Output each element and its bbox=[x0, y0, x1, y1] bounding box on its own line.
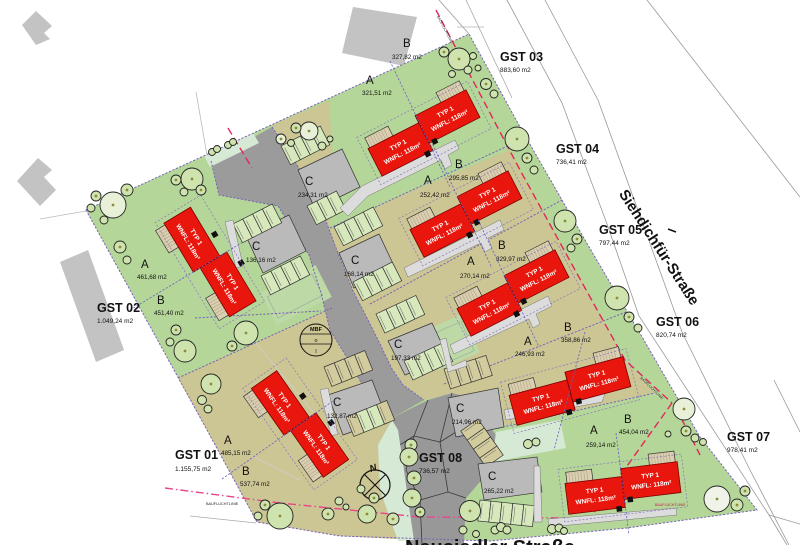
svg-text:GST 06: GST 06 bbox=[656, 315, 699, 329]
svg-text:1.049,24 m2: 1.049,24 m2 bbox=[97, 318, 134, 325]
svg-text:C: C bbox=[488, 471, 496, 483]
svg-text:537,74 m2: 537,74 m2 bbox=[240, 481, 270, 488]
svg-text:A: A bbox=[590, 425, 598, 437]
svg-text:GST 08: GST 08 bbox=[419, 451, 462, 465]
svg-text:358,86 m2: 358,86 m2 bbox=[561, 337, 591, 344]
svg-text:GST 02: GST 02 bbox=[97, 301, 140, 315]
svg-text:B: B bbox=[403, 38, 411, 50]
svg-text:C: C bbox=[456, 403, 464, 415]
svg-text:B: B bbox=[624, 414, 632, 426]
svg-text:B: B bbox=[242, 466, 250, 478]
svg-text:MBF: MBF bbox=[310, 327, 323, 333]
svg-text:A: A bbox=[467, 256, 475, 268]
svg-text:820,74 m2: 820,74 m2 bbox=[656, 332, 687, 339]
svg-text:321,51 m2: 321,51 m2 bbox=[362, 90, 392, 97]
svg-text:C: C bbox=[394, 339, 402, 351]
svg-text:132,87 m2: 132,87 m2 bbox=[327, 413, 357, 420]
svg-text:270,14 m2: 270,14 m2 bbox=[460, 273, 490, 280]
svg-text:327,82 m2: 327,82 m2 bbox=[392, 54, 422, 61]
svg-text:168,14 m2: 168,14 m2 bbox=[344, 271, 374, 278]
svg-text:B: B bbox=[455, 159, 463, 171]
svg-text:GST 03: GST 03 bbox=[500, 50, 543, 64]
svg-text:C: C bbox=[305, 176, 313, 188]
svg-text:797,44 m2: 797,44 m2 bbox=[599, 240, 630, 247]
svg-text:214,96 m2: 214,96 m2 bbox=[452, 419, 482, 426]
svg-text:736,57 m2: 736,57 m2 bbox=[419, 468, 450, 475]
svg-text:o: o bbox=[314, 338, 317, 344]
svg-text:BAUFLUCHTLINIE: BAUFLUCHTLINIE bbox=[655, 503, 686, 507]
svg-text:A: A bbox=[224, 435, 232, 447]
svg-text:978,41 m2: 978,41 m2 bbox=[727, 447, 758, 454]
svg-text:234,31 m2: 234,31 m2 bbox=[298, 192, 328, 199]
svg-text:A: A bbox=[141, 259, 149, 271]
svg-text:329,97 m2: 329,97 m2 bbox=[496, 256, 526, 263]
svg-text:259,14 m2: 259,14 m2 bbox=[586, 442, 616, 449]
svg-text:Neusiedler Straße: Neusiedler Straße bbox=[405, 537, 575, 545]
svg-text:B: B bbox=[564, 322, 572, 334]
svg-text:136,16 m2: 136,16 m2 bbox=[246, 257, 276, 264]
svg-text:B: B bbox=[498, 240, 506, 252]
svg-text:883,60 m2: 883,60 m2 bbox=[500, 67, 531, 74]
svg-text:461,68 m2: 461,68 m2 bbox=[137, 274, 167, 281]
svg-text:A: A bbox=[524, 336, 532, 348]
svg-text:A: A bbox=[424, 175, 432, 187]
svg-text:454,04 m2: 454,04 m2 bbox=[619, 429, 649, 436]
svg-text:265,22 m2: 265,22 m2 bbox=[484, 488, 514, 495]
svg-text:451,40 m2: 451,40 m2 bbox=[154, 310, 184, 317]
svg-text:B: B bbox=[157, 295, 165, 307]
svg-text:l: l bbox=[315, 349, 316, 355]
svg-text:C: C bbox=[333, 397, 341, 409]
svg-text:736,41 m2: 736,41 m2 bbox=[556, 159, 587, 166]
svg-text:GST 07: GST 07 bbox=[727, 430, 770, 444]
svg-text:485,15 m2: 485,15 m2 bbox=[221, 450, 251, 457]
svg-text:197,33 m2: 197,33 m2 bbox=[391, 355, 421, 362]
svg-text:295,85 m2: 295,85 m2 bbox=[449, 175, 479, 182]
svg-text:GST 04: GST 04 bbox=[556, 142, 599, 156]
svg-text:1.155,75 m2: 1.155,75 m2 bbox=[175, 466, 212, 473]
svg-text:GST 01: GST 01 bbox=[175, 448, 218, 462]
svg-text:246,93 m2: 246,93 m2 bbox=[515, 351, 545, 358]
svg-text:C: C bbox=[252, 241, 260, 253]
svg-text:A: A bbox=[366, 75, 374, 87]
svg-text:C: C bbox=[351, 255, 359, 267]
svg-text:BAUFLUCHTLINIE: BAUFLUCHTLINIE bbox=[206, 502, 239, 506]
svg-text:252,42 m2: 252,42 m2 bbox=[420, 192, 450, 199]
